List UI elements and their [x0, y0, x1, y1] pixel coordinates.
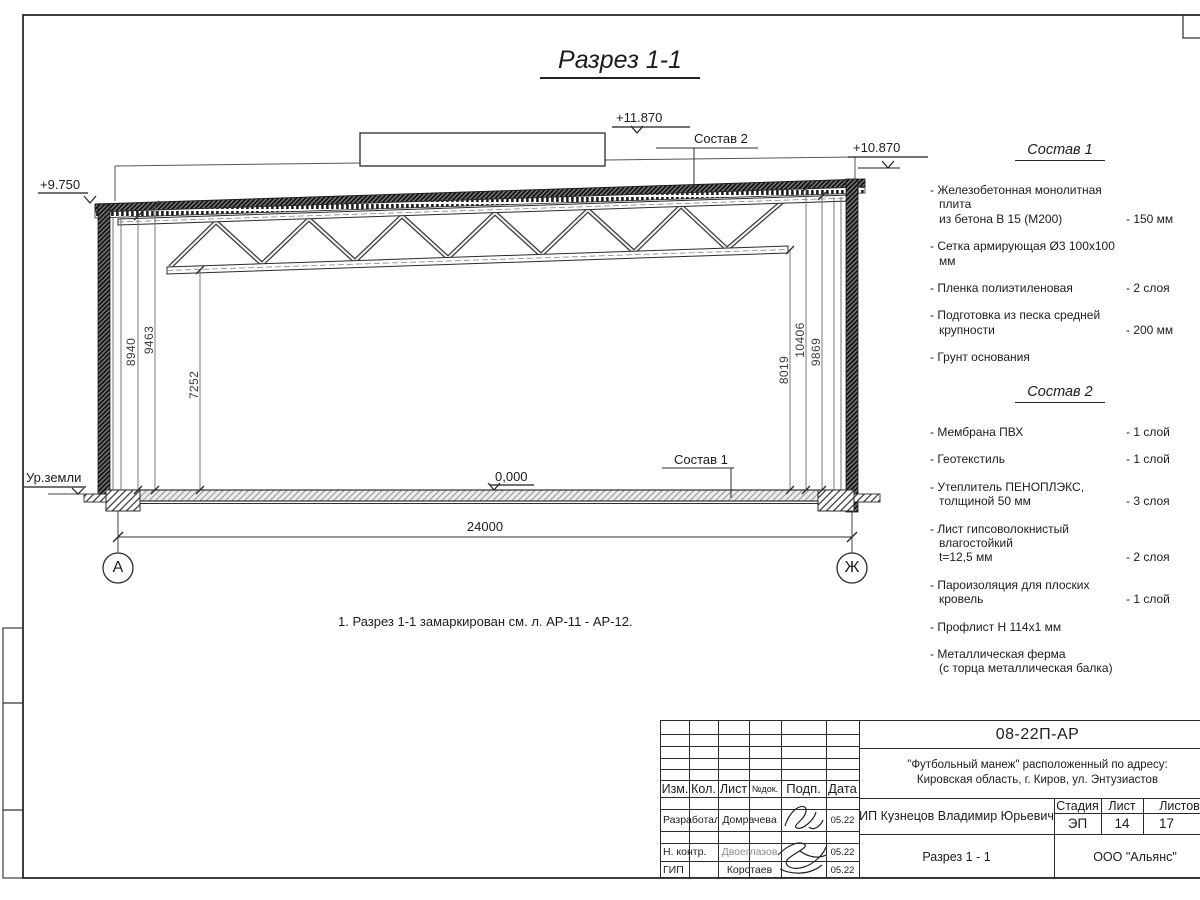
title-block: Изм. Кол. Лист №док. Подп. Дата Разработ… — [660, 720, 1200, 878]
col-ndoc: №док. — [749, 780, 781, 797]
left-wall — [98, 204, 121, 497]
callout-floor-label: Состав 1 — [674, 452, 728, 467]
row-date: 05.22 — [826, 861, 859, 879]
elevation-roof-low-label: +9.750 — [40, 177, 80, 192]
list-item: - Пароизоляция для плоских кровель- 1 сл… — [930, 578, 1190, 607]
row-name: Двоеглазов — [718, 843, 781, 861]
list-item: - Профлист Н 114х1 мм — [930, 620, 1190, 634]
row-role: ГИП — [663, 861, 718, 879]
row-name: Домрачева — [718, 809, 781, 831]
drawing-title: Разрез 1-1 — [540, 46, 700, 79]
sheets-total: 17 — [1143, 813, 1200, 834]
signature — [781, 800, 827, 834]
composition-1-list: Состав 1 - Железобетонная монолитная пли… — [930, 142, 1190, 378]
roof-assembly — [95, 179, 865, 225]
composition-1-title: Состав 1 — [1015, 142, 1105, 161]
dim-left-2: 9463 — [142, 326, 156, 354]
project-name: "Футбольный манеж" расположенный по адре… — [859, 748, 1200, 798]
col-izm: Изм. — [661, 780, 689, 797]
height-dimension-lines — [138, 188, 822, 490]
company-name: ООО "Альянс" — [1054, 834, 1200, 879]
footing-right — [818, 490, 854, 511]
col-list: Лист — [718, 780, 749, 797]
span-dimension-label: 24000 — [455, 519, 515, 534]
stage-value: ЭП — [1054, 813, 1101, 834]
stage-label: Стадия — [1054, 798, 1101, 813]
col-data: Дата — [826, 780, 859, 797]
row-name: Коротаев — [718, 861, 781, 879]
list-item: - Грунт основания — [930, 350, 1190, 364]
dim-right-1: 8019 — [777, 356, 791, 384]
list-item: - Подготовка из песка средней крупности-… — [930, 308, 1190, 337]
sheet-label: Лист — [1101, 798, 1143, 813]
list-item: - Пленка полиэтиленовая- 2 слоя — [930, 281, 1190, 295]
composition-2-list: Состав 2 - Мембрана ПВХ- 1 слой - Геотек… — [930, 384, 1190, 689]
sheet-title: Разрез 1 - 1 — [859, 834, 1054, 879]
composition-2-title: Состав 2 — [1015, 384, 1105, 403]
sheets-label: Листов — [1143, 798, 1200, 813]
blind-area-right — [854, 494, 880, 502]
blind-area-left — [84, 494, 106, 502]
dim-right-3: 9869 — [809, 338, 823, 366]
col-podp: Подп. — [781, 780, 826, 797]
list-item: - Железобетонная монолитная плита из бет… — [930, 183, 1190, 226]
list-item: - Мембрана ПВХ- 1 слой — [930, 425, 1190, 439]
signature — [774, 837, 830, 879]
sheet-number: 14 — [1101, 813, 1143, 834]
elevation-roof-high-label: +10.870 — [853, 140, 900, 155]
row-date: 05.22 — [826, 843, 859, 861]
callout-roof-label: Состав 2 — [694, 131, 748, 146]
elevation-unit-top-label: +11.870 — [616, 110, 662, 125]
floor-slab — [110, 490, 854, 504]
client-name: ИП Кузнецов Владимир Юрьевич — [859, 798, 1054, 834]
drawing-note: 1. Разрез 1-1 замаркирован см. л. АР-11 … — [338, 614, 633, 629]
row-role: Разработал — [663, 809, 718, 831]
list-item: - Геотекстиль- 1 слой — [930, 452, 1190, 466]
dim-left-1: 8940 — [124, 338, 138, 366]
list-item: - Утеплитель ПЕНОПЛЭКС, толщиной 50 мм- … — [930, 480, 1190, 509]
col-kol: Кол. — [689, 780, 718, 797]
drawing-sheet: Разрез 1-1 +9.750 +11.870 +10.870 0,000 … — [0, 0, 1200, 900]
axis-label-right: Ж — [837, 553, 867, 583]
elevation-floor-label: 0,000 — [495, 469, 528, 484]
rooftop-unit — [360, 133, 605, 166]
row-date: 05.22 — [826, 809, 859, 831]
right-wall — [834, 179, 858, 512]
list-item: - Сетка армирующая Ø3 100х100 мм — [930, 239, 1190, 268]
list-item: - Лист гипсоволокнистый влагостойкий t=1… — [930, 522, 1190, 565]
doc-number: 08-22П-АР — [859, 721, 1200, 748]
dim-left-3: 7252 — [187, 371, 201, 399]
row-role: Н. контр. — [663, 843, 718, 861]
list-item: - Металлическая ферма (с торца металличе… — [930, 647, 1190, 676]
ground-level-label: Ур.земли — [26, 470, 81, 485]
dim-right-2: 10406 — [793, 322, 807, 357]
axis-label-left: А — [103, 553, 133, 583]
